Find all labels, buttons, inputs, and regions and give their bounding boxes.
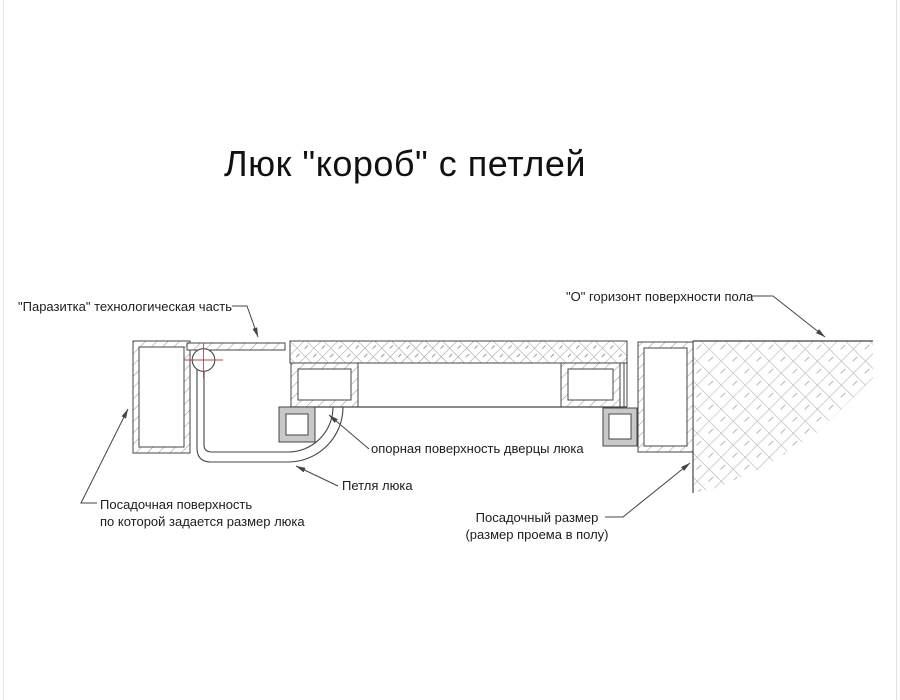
bracket-right-inner xyxy=(609,414,631,439)
hinge-bracket-left xyxy=(279,407,315,442)
floor-concrete-hatch xyxy=(693,341,873,493)
diagram-page: Люк "короб" с петлей "Паразитка" техноло… xyxy=(0,0,900,700)
leader-door-support-surface xyxy=(329,415,369,449)
frame-profile-right xyxy=(638,342,693,452)
label-seating-size-line1: Посадочный размер xyxy=(437,509,637,526)
frame-left-inner xyxy=(139,347,184,447)
label-door-support-surface: опорная поверхность дверцы люка xyxy=(371,440,584,457)
label-seating-surface: Посадочная поверхность по которой задает… xyxy=(100,496,305,530)
leader-seating-surface xyxy=(81,409,128,503)
label-seating-size: Посадочный размер (размер проема в полу) xyxy=(437,509,637,543)
technical-drawing xyxy=(0,0,900,700)
door-box-right-inner xyxy=(568,369,613,400)
door-top-slab xyxy=(290,341,627,363)
label-parasitic-part: "Паразитка" технологическая часть xyxy=(18,298,232,315)
page-title: Люк "короб" с петлей xyxy=(105,155,705,172)
frame-right-inner xyxy=(644,348,687,446)
leader-hatch-hinge xyxy=(296,466,338,486)
leader-floor-horizon xyxy=(751,296,825,337)
floor-slab xyxy=(693,341,873,493)
leader-parasitic-part xyxy=(232,306,258,337)
frame-profile-left xyxy=(133,341,190,453)
label-hatch-hinge: Петля люка xyxy=(342,477,413,494)
hatch-door xyxy=(290,341,627,407)
label-floor-horizon: "О" горизонт поверхности пола xyxy=(566,288,753,305)
label-seating-size-line2: (размер проема в полу) xyxy=(437,526,637,543)
bracket-right xyxy=(603,408,637,446)
label-seating-surface-line2: по которой задается размер люка xyxy=(100,513,305,530)
label-seating-surface-line1: Посадочная поверхность xyxy=(100,496,305,513)
door-box-left-inner xyxy=(298,369,351,400)
bracket-left-inner xyxy=(286,414,308,435)
